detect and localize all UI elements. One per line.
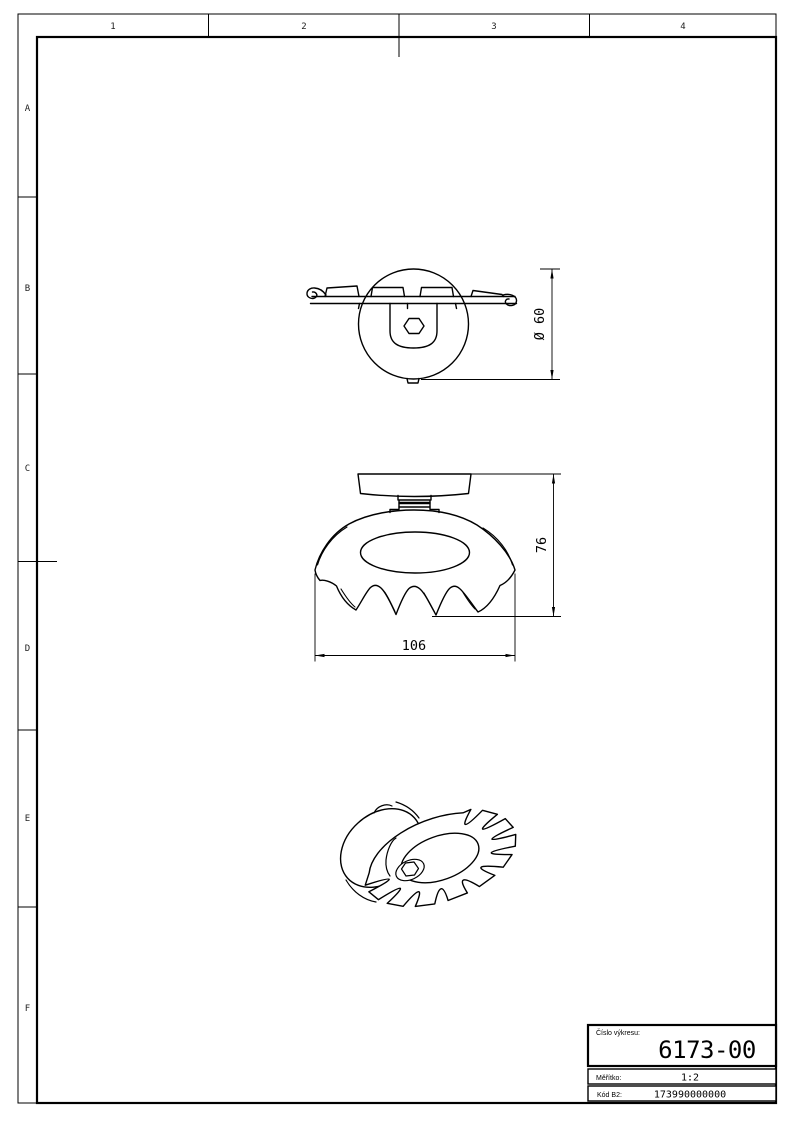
arrow-up-icon (550, 269, 553, 279)
hex-socket (404, 319, 424, 334)
grid-column-label-3: 3 (491, 22, 496, 32)
width-dimension-label: 106 (402, 638, 426, 654)
diameter-dimension: Ø 60 (421, 269, 560, 380)
scale-value: 1:2 (681, 1073, 699, 1084)
height-dimension-label: 76 (534, 537, 550, 553)
hub-cap (358, 474, 471, 497)
down-teeth-ticks (359, 304, 457, 309)
arrow-down-icon (552, 607, 555, 617)
diameter-dimension-label: Ø 60 (532, 308, 548, 341)
washer-thickness-lines (318, 527, 513, 612)
grid-row-label-c: C (25, 464, 30, 474)
grid-column-label-1: 1 (110, 22, 115, 32)
isometric-view (325, 793, 529, 926)
drawing-canvas: 1 2 3 4 A B C D E F Ø 60 (0, 0, 794, 1123)
grid-row-label-a: A (25, 104, 31, 114)
grid-row-label-d: D (25, 644, 30, 654)
inner-border (37, 37, 776, 1103)
row-dividers (18, 197, 37, 907)
grid-column-label-2: 2 (301, 22, 306, 32)
tooth-4 (471, 291, 504, 297)
washer-outline (315, 510, 515, 615)
code-label: Kód B2: (597, 1092, 622, 1099)
tooth-3 (420, 288, 454, 297)
arrow-left-icon (315, 654, 325, 657)
hub-circle (359, 269, 469, 379)
grid-column-label-4: 4 (680, 22, 685, 32)
arrow-right-icon (506, 654, 516, 657)
drawing-number-label: Číslo výkresu: (596, 1028, 640, 1037)
drawing-frame (18, 14, 776, 1103)
top-view (307, 269, 517, 383)
grid-row-label-e: E (25, 814, 30, 824)
drawing-sheet: 1 2 3 4 A B C D E F Ø 60 (0, 0, 794, 1123)
arrow-down-icon (550, 370, 553, 380)
arrow-up-icon (552, 474, 555, 484)
tooth-2 (371, 288, 405, 297)
grid-row-label-f: F (25, 1004, 30, 1014)
washer-hole (361, 532, 470, 573)
scale-label: Měřítko: (596, 1075, 621, 1082)
column-dividers (209, 14, 590, 37)
centering-marks (37, 37, 399, 562)
neck-projection (390, 304, 437, 349)
drawing-number-value: 6173-00 (658, 1036, 756, 1064)
front-view (315, 474, 515, 615)
tooth-1 (325, 286, 359, 297)
title-block: Číslo výkresu: 6173-00 Měřítko: 1:2 Kód … (588, 1025, 776, 1101)
code-value: 173990000000 (654, 1090, 726, 1101)
outer-border (18, 14, 776, 1103)
grid-row-label-b: B (25, 284, 30, 294)
